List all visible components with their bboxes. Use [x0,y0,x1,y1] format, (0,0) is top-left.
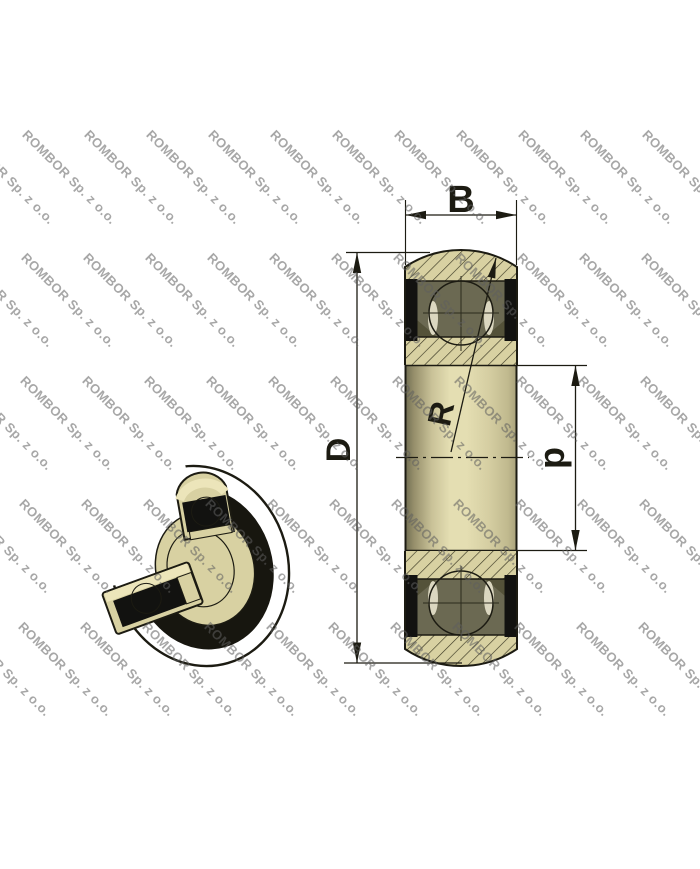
dim-B-arrow-right [496,211,517,219]
dim-d-label: d [537,447,578,469]
seal-right-bottom [505,575,517,637]
bearing-product-image: B D d R [0,0,700,869]
dimension-d: d [517,366,587,551]
dim-D-label: D [320,438,358,463]
dim-B-arrow-left [406,211,427,219]
section-bottom-half [405,551,517,666]
section-view: B D d R [320,179,587,666]
seal-left-top [406,279,418,341]
iso-cutaway-view [78,445,312,688]
dim-B-label: B [447,179,474,221]
seal-right-top [505,279,517,341]
section-top-half [405,250,517,365]
dim-D-arrow-bottom [353,643,361,664]
seal-left-bottom [406,575,418,637]
dim-d-arrow-top [571,366,579,387]
dim-D-arrow-top [353,253,361,274]
dim-d-arrow-bottom [571,530,579,551]
technical-drawing-svg: B D d R [0,0,700,869]
